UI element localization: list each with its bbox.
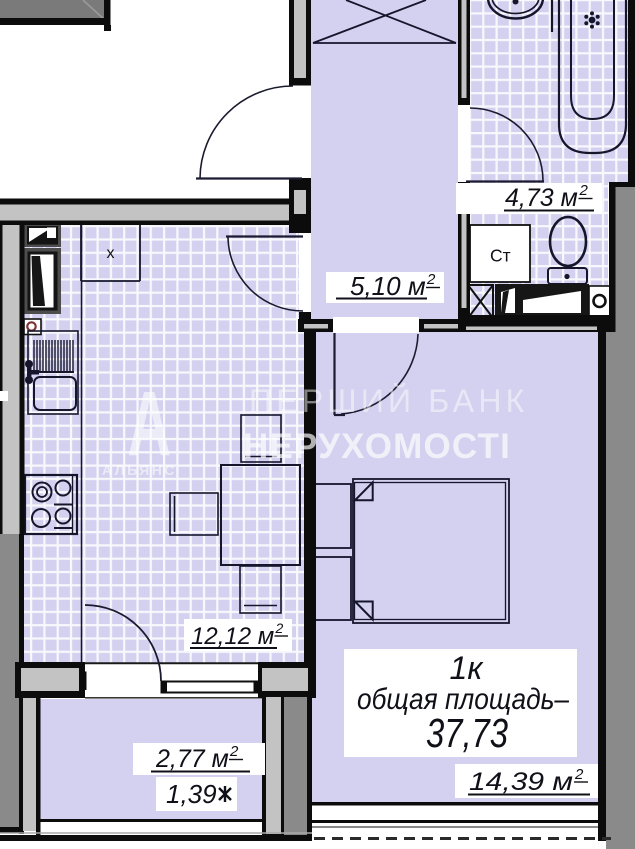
svg-text:х: х bbox=[107, 245, 115, 262]
svg-text:37,73: 37,73 bbox=[426, 710, 508, 756]
svg-text:ПЕРШИЙ БАНК: ПЕРШИЙ БАНК bbox=[249, 383, 529, 419]
svg-text:14,39 м: 14,39 м bbox=[469, 768, 573, 796]
svg-text:4,73 м: 4,73 м bbox=[505, 184, 578, 212]
svg-text:2,77 м: 2,77 м bbox=[155, 745, 229, 773]
svg-text:1,39: 1,39 bbox=[166, 779, 217, 809]
svg-text:1к: 1к bbox=[450, 650, 485, 686]
svg-text:АЛЬЯНС: АЛЬЯНС bbox=[102, 462, 177, 478]
svg-text:2: 2 bbox=[579, 182, 589, 199]
svg-text:2: 2 bbox=[426, 271, 436, 288]
svg-text:Ст: Ст bbox=[490, 246, 511, 266]
svg-text:А: А bbox=[127, 371, 171, 475]
svg-text:2: 2 bbox=[275, 620, 284, 636]
svg-text:2: 2 bbox=[229, 743, 239, 760]
svg-text:5,10 м: 5,10 м bbox=[350, 271, 426, 301]
svg-text:НЕРУХОМОСТІ: НЕРУХОМОСТІ bbox=[243, 427, 511, 466]
svg-text:12,12 м: 12,12 м bbox=[191, 623, 274, 650]
svg-text:2: 2 bbox=[574, 766, 584, 783]
